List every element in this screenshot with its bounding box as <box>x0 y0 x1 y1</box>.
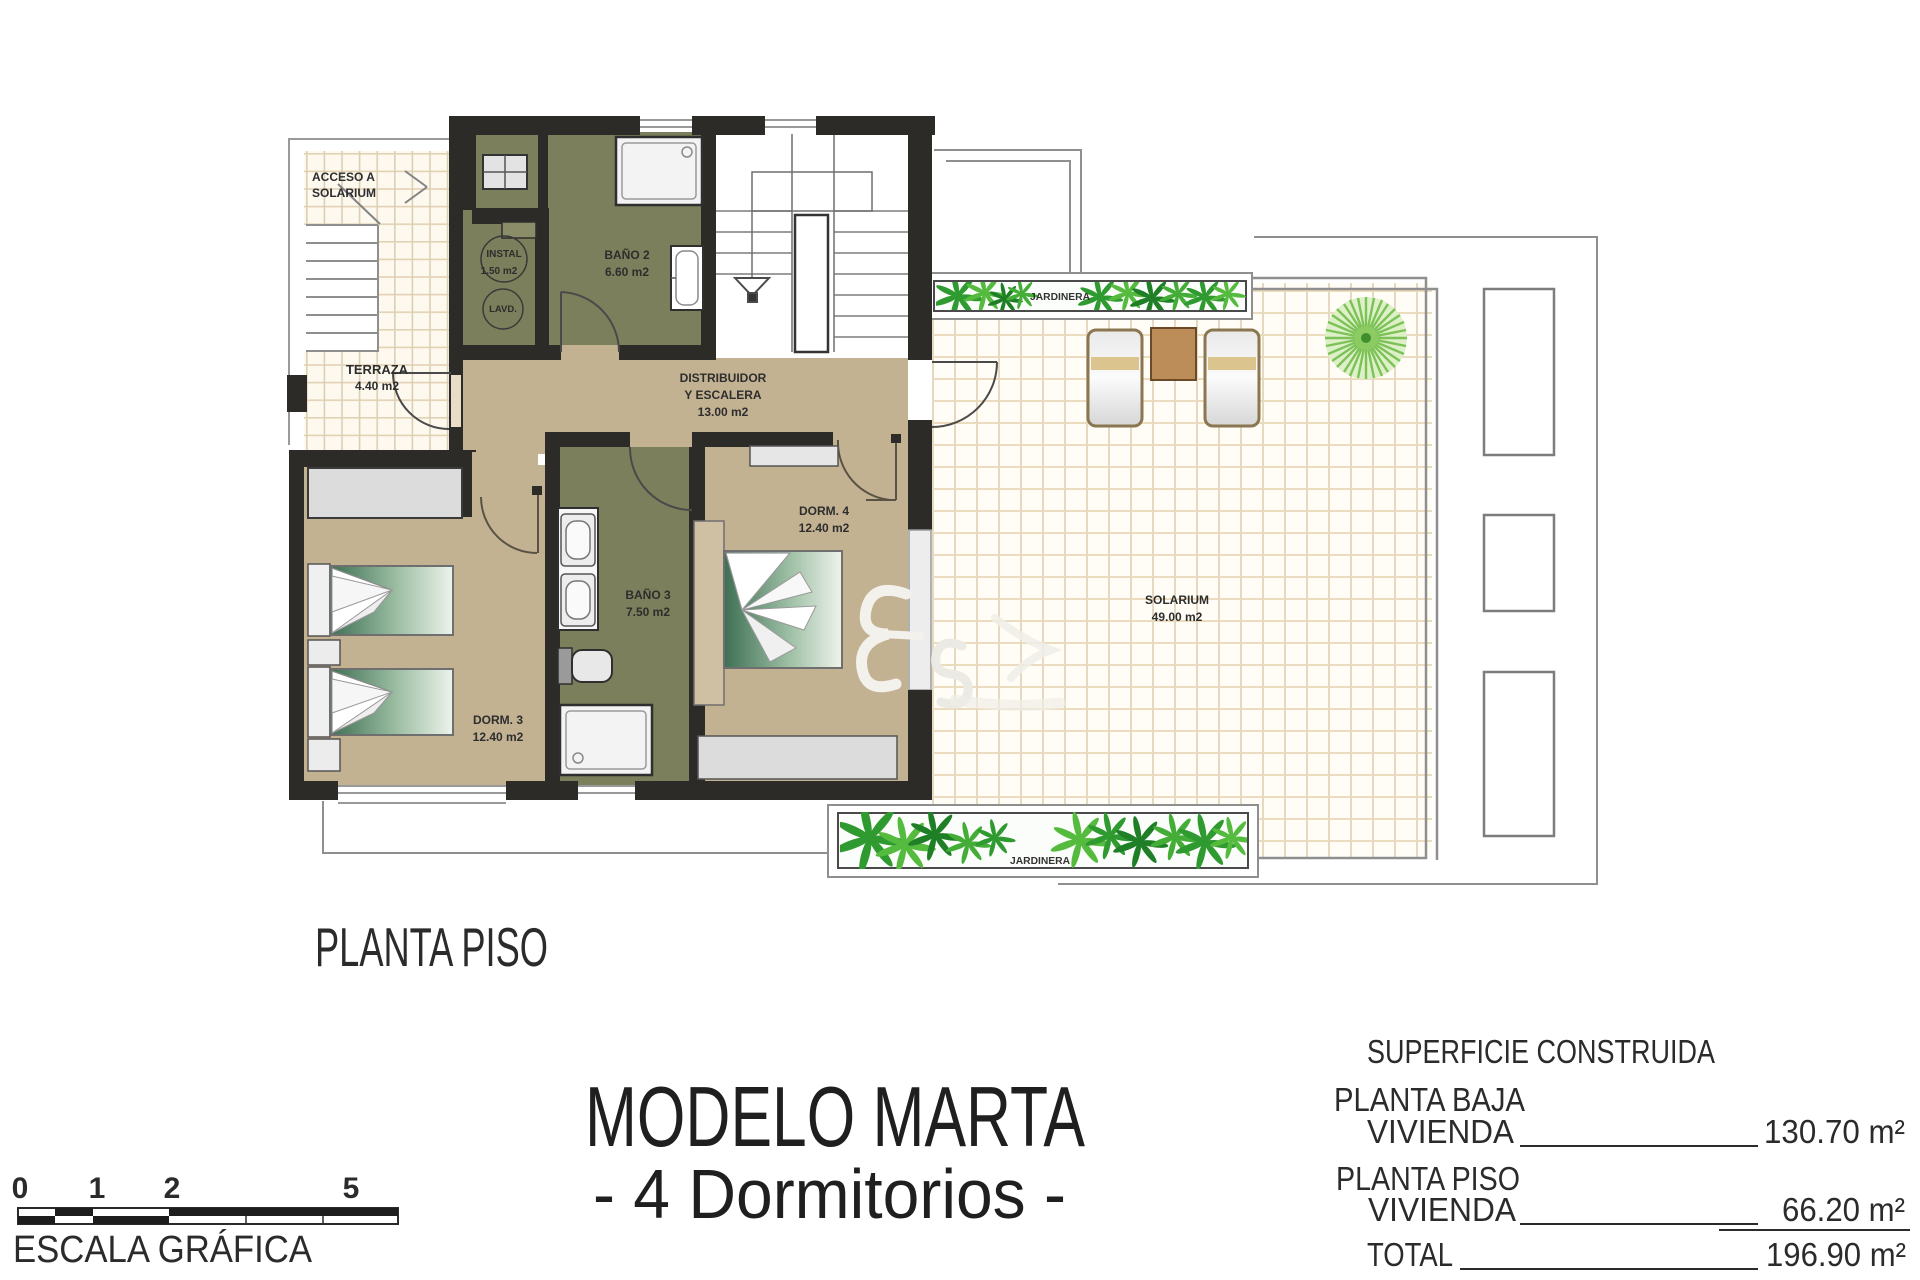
svg-text:7.50 m2: 7.50 m2 <box>626 605 670 619</box>
svg-text:INSTAL: INSTAL <box>486 249 521 260</box>
svg-text:4.40 m2: 4.40 m2 <box>355 379 399 393</box>
svg-text:1: 1 <box>89 1172 106 1205</box>
svg-text:66.20 m²: 66.20 m² <box>1782 1191 1905 1228</box>
svg-text:196.90 m²: 196.90 m² <box>1766 1236 1906 1273</box>
svg-text:SUPERFICIE CONSTRUIDA: SUPERFICIE CONSTRUIDA <box>1367 1033 1715 1070</box>
svg-text:SOLARIUM: SOLARIUM <box>312 186 376 200</box>
svg-text:49.00 m2: 49.00 m2 <box>1152 610 1203 624</box>
svg-text:DISTRIBUIDOR: DISTRIBUIDOR <box>680 371 767 385</box>
svg-text:LAVD.: LAVD. <box>489 304 517 315</box>
svg-text:PLANTA PISO: PLANTA PISO <box>315 916 548 978</box>
svg-text:6.60 m2: 6.60 m2 <box>605 265 649 279</box>
svg-text:12.40 m2: 12.40 m2 <box>799 521 850 535</box>
svg-text:TERRAZA: TERRAZA <box>346 362 409 377</box>
svg-text:TOTAL: TOTAL <box>1367 1236 1453 1273</box>
svg-text:BAÑO 3: BAÑO 3 <box>625 587 671 602</box>
svg-text:DORM. 4: DORM. 4 <box>799 504 849 518</box>
svg-text:DORM. 3: DORM. 3 <box>473 713 523 727</box>
svg-text:ESCALA GRÁFICA: ESCALA GRÁFICA <box>13 1228 313 1271</box>
svg-text:BAÑO 2: BAÑO 2 <box>604 247 650 262</box>
svg-text:12.40 m2: 12.40 m2 <box>473 730 524 744</box>
svg-text:- 4 Dormitorios -: - 4 Dormitorios - <box>593 1155 1066 1233</box>
svg-text:130.70 m²: 130.70 m² <box>1764 1113 1905 1150</box>
svg-text:JARDINERA: JARDINERA <box>1030 292 1090 303</box>
svg-text:VIVIENDA: VIVIENDA <box>1368 1191 1516 1228</box>
svg-text:5: 5 <box>343 1172 360 1205</box>
svg-text:2: 2 <box>164 1172 181 1205</box>
svg-text:MODELO MARTA: MODELO MARTA <box>585 1070 1085 1165</box>
svg-text:13.00 m2: 13.00 m2 <box>698 405 749 419</box>
svg-text:Y ESCALERA: Y ESCALERA <box>684 388 761 402</box>
svg-text:JARDINERA: JARDINERA <box>1010 856 1070 867</box>
svg-text:ACCESO A: ACCESO A <box>312 170 375 184</box>
svg-text:VIVIENDA: VIVIENDA <box>1367 1113 1514 1150</box>
svg-text:0: 0 <box>12 1172 29 1205</box>
svg-text:SOLARIUM: SOLARIUM <box>1145 593 1209 607</box>
svg-text:1.50 m2: 1.50 m2 <box>481 266 518 277</box>
